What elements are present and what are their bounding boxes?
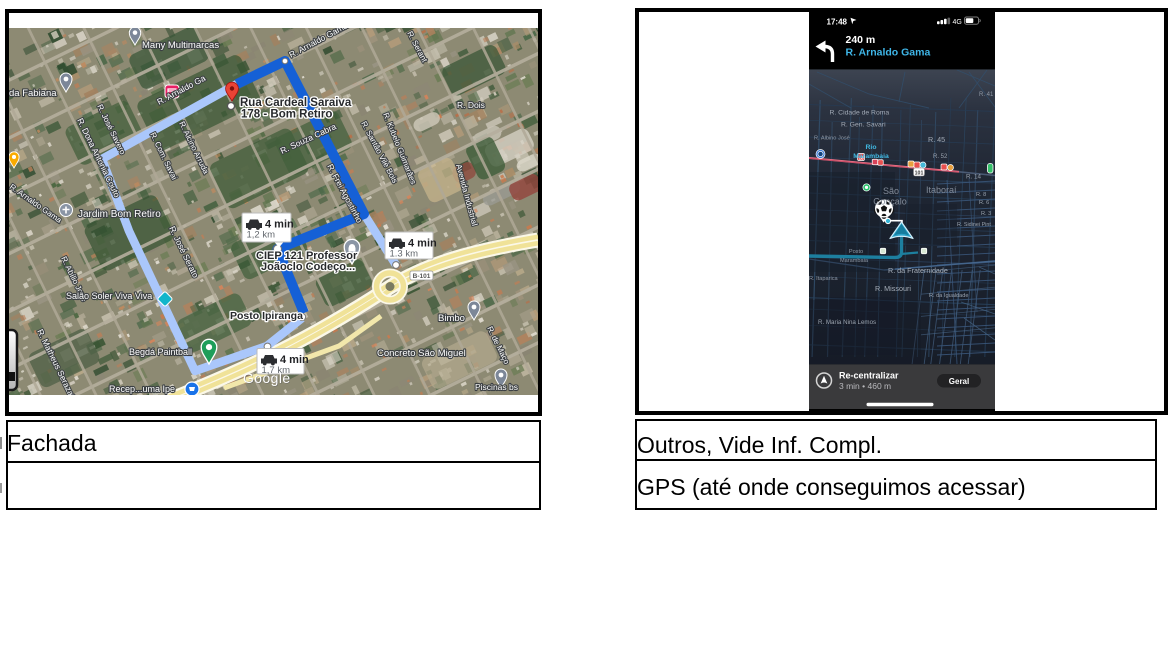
svg-text:R. Gen. Savari: R. Gen. Savari xyxy=(841,122,886,129)
svg-text:Joãoclo Codeço...: Joãoclo Codeço... xyxy=(261,261,355,273)
svg-text:R. 8: R. 8 xyxy=(976,192,986,198)
svg-text:1.3 km: 1.3 km xyxy=(390,249,419,260)
svg-text:R. 41: R. 41 xyxy=(979,92,994,98)
svg-text:Bimbo: Bimbo xyxy=(438,313,465,324)
svg-text:Posto Ipiranga: Posto Ipiranga xyxy=(230,310,303,322)
svg-text:178 - Bom Retiro: 178 - Bom Retiro xyxy=(241,109,332,121)
svg-text:R. Itaparica: R. Itaparica xyxy=(809,276,838,282)
svg-text:3 min • 460 m: 3 min • 460 m xyxy=(839,381,891,391)
svg-text:Concreto São Miguel: Concreto São Miguel xyxy=(377,348,466,359)
svg-text:Salão Soler Viva Viva: Salão Soler Viva Viva xyxy=(66,291,152,301)
svg-text:Piscinas bs: Piscinas bs xyxy=(475,382,518,392)
svg-text:Marambaia: Marambaia xyxy=(840,258,869,264)
svg-text:R. Arnaldo Gama: R. Arnaldo Gama xyxy=(846,47,931,59)
svg-text:Rua Cardeal Saraiva: Rua Cardeal Saraiva xyxy=(240,97,352,109)
svg-text:Posto: Posto xyxy=(849,249,863,255)
svg-text:Gonçalo: Gonçalo xyxy=(873,197,907,207)
svg-text:Begdá Paintball: Begdá Paintball xyxy=(129,347,192,357)
svg-text:R. da Igualdade: R. da Igualdade xyxy=(929,293,969,299)
svg-text:Many Multimarcas: Many Multimarcas xyxy=(142,40,219,51)
svg-text:101: 101 xyxy=(915,170,924,176)
svg-text:R. Albino José: R. Albino José xyxy=(814,136,850,142)
svg-text:Jardim Bom Retiro: Jardim Bom Retiro xyxy=(78,209,161,220)
svg-text:4G: 4G xyxy=(953,19,962,26)
svg-text:São: São xyxy=(883,186,899,196)
svg-text:R. Missouri: R. Missouri xyxy=(875,284,911,293)
svg-text:Rio: Rio xyxy=(866,144,877,151)
svg-text:Google: Google xyxy=(243,370,291,386)
svg-text:R. da Fraternidade: R. da Fraternidade xyxy=(888,266,948,275)
svg-text:Itaboraí: Itaboraí xyxy=(926,185,957,195)
svg-text:da Fabiana: da Fabiana xyxy=(9,88,57,99)
svg-text:Recep...uma Ipe: Recep...uma Ipe xyxy=(109,384,175,394)
svg-text:R. 45: R. 45 xyxy=(928,135,945,144)
svg-text:R. Cidade de Roma: R. Cidade de Roma xyxy=(830,110,890,117)
svg-text:R. Sidinei Pint: R. Sidinei Pint xyxy=(957,222,991,228)
svg-text:R. 6: R. 6 xyxy=(979,200,989,206)
svg-text:R. 14: R. 14 xyxy=(966,174,982,181)
svg-text:17:48: 17:48 xyxy=(827,17,848,26)
svg-text:1,2 km: 1,2 km xyxy=(247,230,276,241)
svg-text:R. Dois: R. Dois xyxy=(457,100,485,110)
svg-text:R. 3: R. 3 xyxy=(981,211,991,217)
svg-text:Re-centralizar: Re-centralizar xyxy=(839,371,899,381)
svg-text:Marambaia: Marambaia xyxy=(853,153,889,160)
svg-text:B-101: B-101 xyxy=(413,273,431,280)
svg-text:R. 52: R. 52 xyxy=(933,154,948,160)
svg-text:240 m: 240 m xyxy=(846,34,876,46)
svg-text:R. Maria Nina Lemos: R. Maria Nina Lemos xyxy=(818,319,876,326)
svg-text:Geral: Geral xyxy=(949,377,969,386)
